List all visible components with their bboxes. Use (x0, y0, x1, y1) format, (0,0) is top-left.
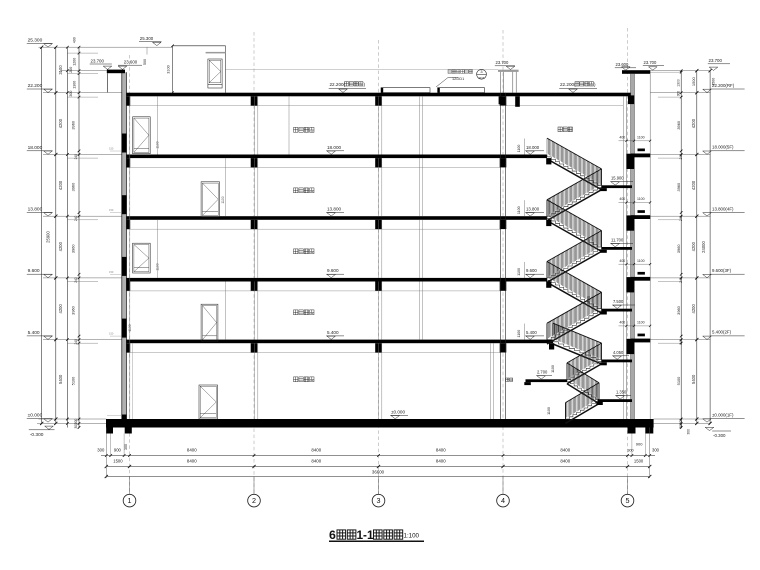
svg-text:8400: 8400 (436, 447, 446, 452)
svg-text:1100: 1100 (587, 296, 591, 304)
svg-text:1100: 1100 (637, 197, 645, 201)
svg-text:1100: 1100 (156, 263, 160, 270)
svg-text:3960: 3960 (71, 182, 76, 191)
svg-text:23.600: 23.600 (124, 60, 138, 65)
svg-text:240: 240 (679, 216, 683, 222)
svg-text:3960: 3960 (676, 120, 681, 129)
svg-text:150: 150 (109, 147, 114, 151)
svg-text:8400: 8400 (187, 458, 197, 463)
svg-text:400: 400 (73, 37, 77, 43)
svg-text:±0.000: ±0.000 (28, 413, 43, 419)
svg-text:23.700: 23.700 (496, 60, 509, 65)
svg-text:2D3: 2D3 (479, 76, 485, 80)
svg-text:1100: 1100 (221, 196, 225, 203)
svg-text:±0.000(1F): ±0.000(1F) (712, 412, 734, 417)
svg-text:3960: 3960 (71, 244, 76, 253)
svg-text:3: 3 (377, 496, 381, 505)
svg-text:23.700: 23.700 (91, 58, 105, 63)
svg-text:5: 5 (626, 496, 630, 505)
svg-text:13.800: 13.800 (327, 207, 341, 212)
svg-text:11.700: 11.700 (611, 237, 624, 242)
svg-text:240: 240 (74, 216, 78, 222)
svg-text:-0.300: -0.300 (713, 433, 726, 438)
svg-text:8400: 8400 (560, 458, 570, 463)
svg-text:12/2D1: 12/2D1 (452, 77, 464, 81)
svg-text:1300: 1300 (676, 79, 680, 87)
svg-text:300: 300 (652, 447, 660, 452)
svg-text:240: 240 (679, 277, 683, 283)
svg-text:23.700: 23.700 (709, 58, 723, 63)
svg-text:1100: 1100 (547, 407, 551, 415)
svg-text:1:100: 1:100 (404, 533, 420, 540)
svg-text:3100: 3100 (167, 65, 171, 73)
svg-text:15.900: 15.900 (611, 176, 624, 181)
svg-text:1100: 1100 (551, 365, 555, 373)
svg-text:9.600: 9.600 (28, 268, 40, 274)
svg-text:240: 240 (679, 339, 683, 345)
svg-text:8400: 8400 (436, 458, 446, 463)
svg-text:1100: 1100 (637, 259, 645, 263)
svg-text:1500: 1500 (691, 76, 696, 86)
svg-text:5400: 5400 (691, 374, 696, 384)
svg-text:5.400(2F): 5.400(2F) (712, 330, 732, 335)
svg-text:3960: 3960 (676, 305, 681, 314)
svg-text:4200: 4200 (58, 118, 63, 128)
svg-text:1500: 1500 (113, 458, 123, 463)
svg-text:5.400: 5.400 (28, 330, 40, 336)
svg-text:300: 300 (627, 448, 633, 452)
svg-text:7.500: 7.500 (613, 299, 624, 304)
svg-text:240: 240 (74, 277, 78, 283)
svg-text:2: 2 (252, 496, 256, 505)
svg-text:18.000: 18.000 (526, 145, 540, 150)
svg-text:3100: 3100 (58, 65, 63, 75)
svg-text:1.350: 1.350 (616, 390, 627, 395)
svg-text:4200: 4200 (691, 241, 696, 251)
svg-text:1-1: 1-1 (357, 528, 374, 542)
svg-text:36600: 36600 (372, 469, 385, 474)
svg-text:22.200(: 22.200( (330, 82, 346, 87)
svg-text:23.700: 23.700 (644, 60, 657, 65)
svg-text:240: 240 (679, 154, 683, 160)
svg-text:400: 400 (619, 259, 625, 263)
svg-text:4200: 4200 (58, 303, 63, 313)
svg-text:1100: 1100 (517, 330, 521, 338)
svg-text:23.600: 23.600 (616, 62, 629, 67)
svg-text:5100: 5100 (676, 376, 681, 385)
svg-text:4200: 4200 (58, 241, 63, 251)
svg-text:300: 300 (97, 447, 105, 452)
svg-text:4200: 4200 (691, 118, 696, 128)
svg-text:400: 400 (619, 136, 625, 140)
svg-text:240: 240 (74, 154, 78, 160)
svg-text:300: 300 (687, 429, 691, 435)
svg-text:-0.300: -0.300 (30, 432, 44, 438)
svg-text:300: 300 (679, 423, 683, 429)
svg-text:4200: 4200 (691, 303, 696, 313)
svg-text:300: 300 (676, 91, 680, 97)
svg-text:4: 4 (501, 496, 505, 505)
svg-text:13.800: 13.800 (526, 207, 540, 212)
svg-text:9.600: 9.600 (526, 268, 537, 273)
svg-text:8400: 8400 (560, 447, 570, 452)
svg-text:25900: 25900 (46, 231, 51, 243)
svg-text:500: 500 (143, 59, 147, 65)
svg-text:240: 240 (74, 339, 78, 345)
svg-text:1100: 1100 (517, 268, 521, 276)
svg-text:8400: 8400 (311, 447, 321, 452)
svg-text:22.200(RF): 22.200(RF) (712, 83, 735, 88)
svg-text:18.000(5F): 18.000(5F) (712, 145, 734, 150)
svg-text:6: 6 (329, 528, 336, 542)
svg-text:25.300: 25.300 (140, 36, 154, 41)
svg-text:200: 200 (69, 67, 73, 73)
svg-text:4.050: 4.050 (613, 350, 624, 355)
svg-text:5100: 5100 (71, 376, 76, 385)
svg-text:25.300: 25.300 (28, 38, 43, 44)
svg-text:3: 3 (480, 69, 482, 74)
svg-text:±0.000: ±0.000 (391, 409, 405, 414)
svg-text:18.000: 18.000 (327, 145, 341, 150)
svg-text:13.800: 13.800 (28, 207, 43, 213)
svg-text:150: 150 (109, 208, 114, 212)
svg-text:13.800(4F): 13.800(4F) (712, 206, 734, 211)
svg-text:300: 300 (74, 423, 78, 429)
svg-text:400: 400 (619, 197, 625, 201)
svg-text:9.600: 9.600 (327, 268, 339, 273)
svg-text:3960: 3960 (71, 120, 76, 129)
svg-text:1100: 1100 (156, 141, 160, 148)
svg-text:18.000: 18.000 (28, 145, 43, 151)
svg-text:300: 300 (69, 91, 73, 97)
svg-text:3960: 3960 (676, 244, 681, 253)
svg-text:5400: 5400 (58, 374, 63, 384)
svg-text:150: 150 (109, 332, 114, 336)
svg-text:4200: 4200 (691, 180, 696, 190)
svg-text:300: 300 (124, 444, 128, 450)
svg-text:1100: 1100 (637, 321, 645, 325)
svg-text:900: 900 (636, 441, 643, 446)
svg-text:1100: 1100 (637, 136, 645, 140)
svg-text:5.400: 5.400 (327, 330, 339, 335)
svg-text:150: 150 (109, 270, 114, 274)
svg-text:22.200(: 22.200( (560, 82, 576, 87)
svg-text:8400: 8400 (311, 458, 321, 463)
svg-text:1500: 1500 (634, 458, 644, 463)
svg-text:4200: 4200 (58, 180, 63, 190)
svg-text:900: 900 (114, 447, 122, 452)
svg-text:8400: 8400 (187, 447, 197, 452)
svg-text:1200: 1200 (73, 58, 77, 66)
svg-text:2.700: 2.700 (537, 370, 548, 375)
svg-text:5.400: 5.400 (526, 330, 537, 335)
svg-text:1100: 1100 (517, 206, 521, 214)
svg-text:1300: 1300 (73, 81, 77, 89)
svg-text:22.200: 22.200 (28, 83, 43, 89)
svg-text:1100: 1100 (128, 324, 132, 331)
svg-text:400: 400 (619, 321, 625, 325)
svg-text:24000: 24000 (701, 241, 706, 253)
svg-text:9.600(3F): 9.600(3F) (712, 268, 732, 273)
svg-text:1100: 1100 (517, 145, 521, 153)
svg-text:3960: 3960 (71, 305, 76, 314)
svg-text:3960: 3960 (676, 182, 681, 191)
svg-text:1: 1 (128, 496, 132, 505)
